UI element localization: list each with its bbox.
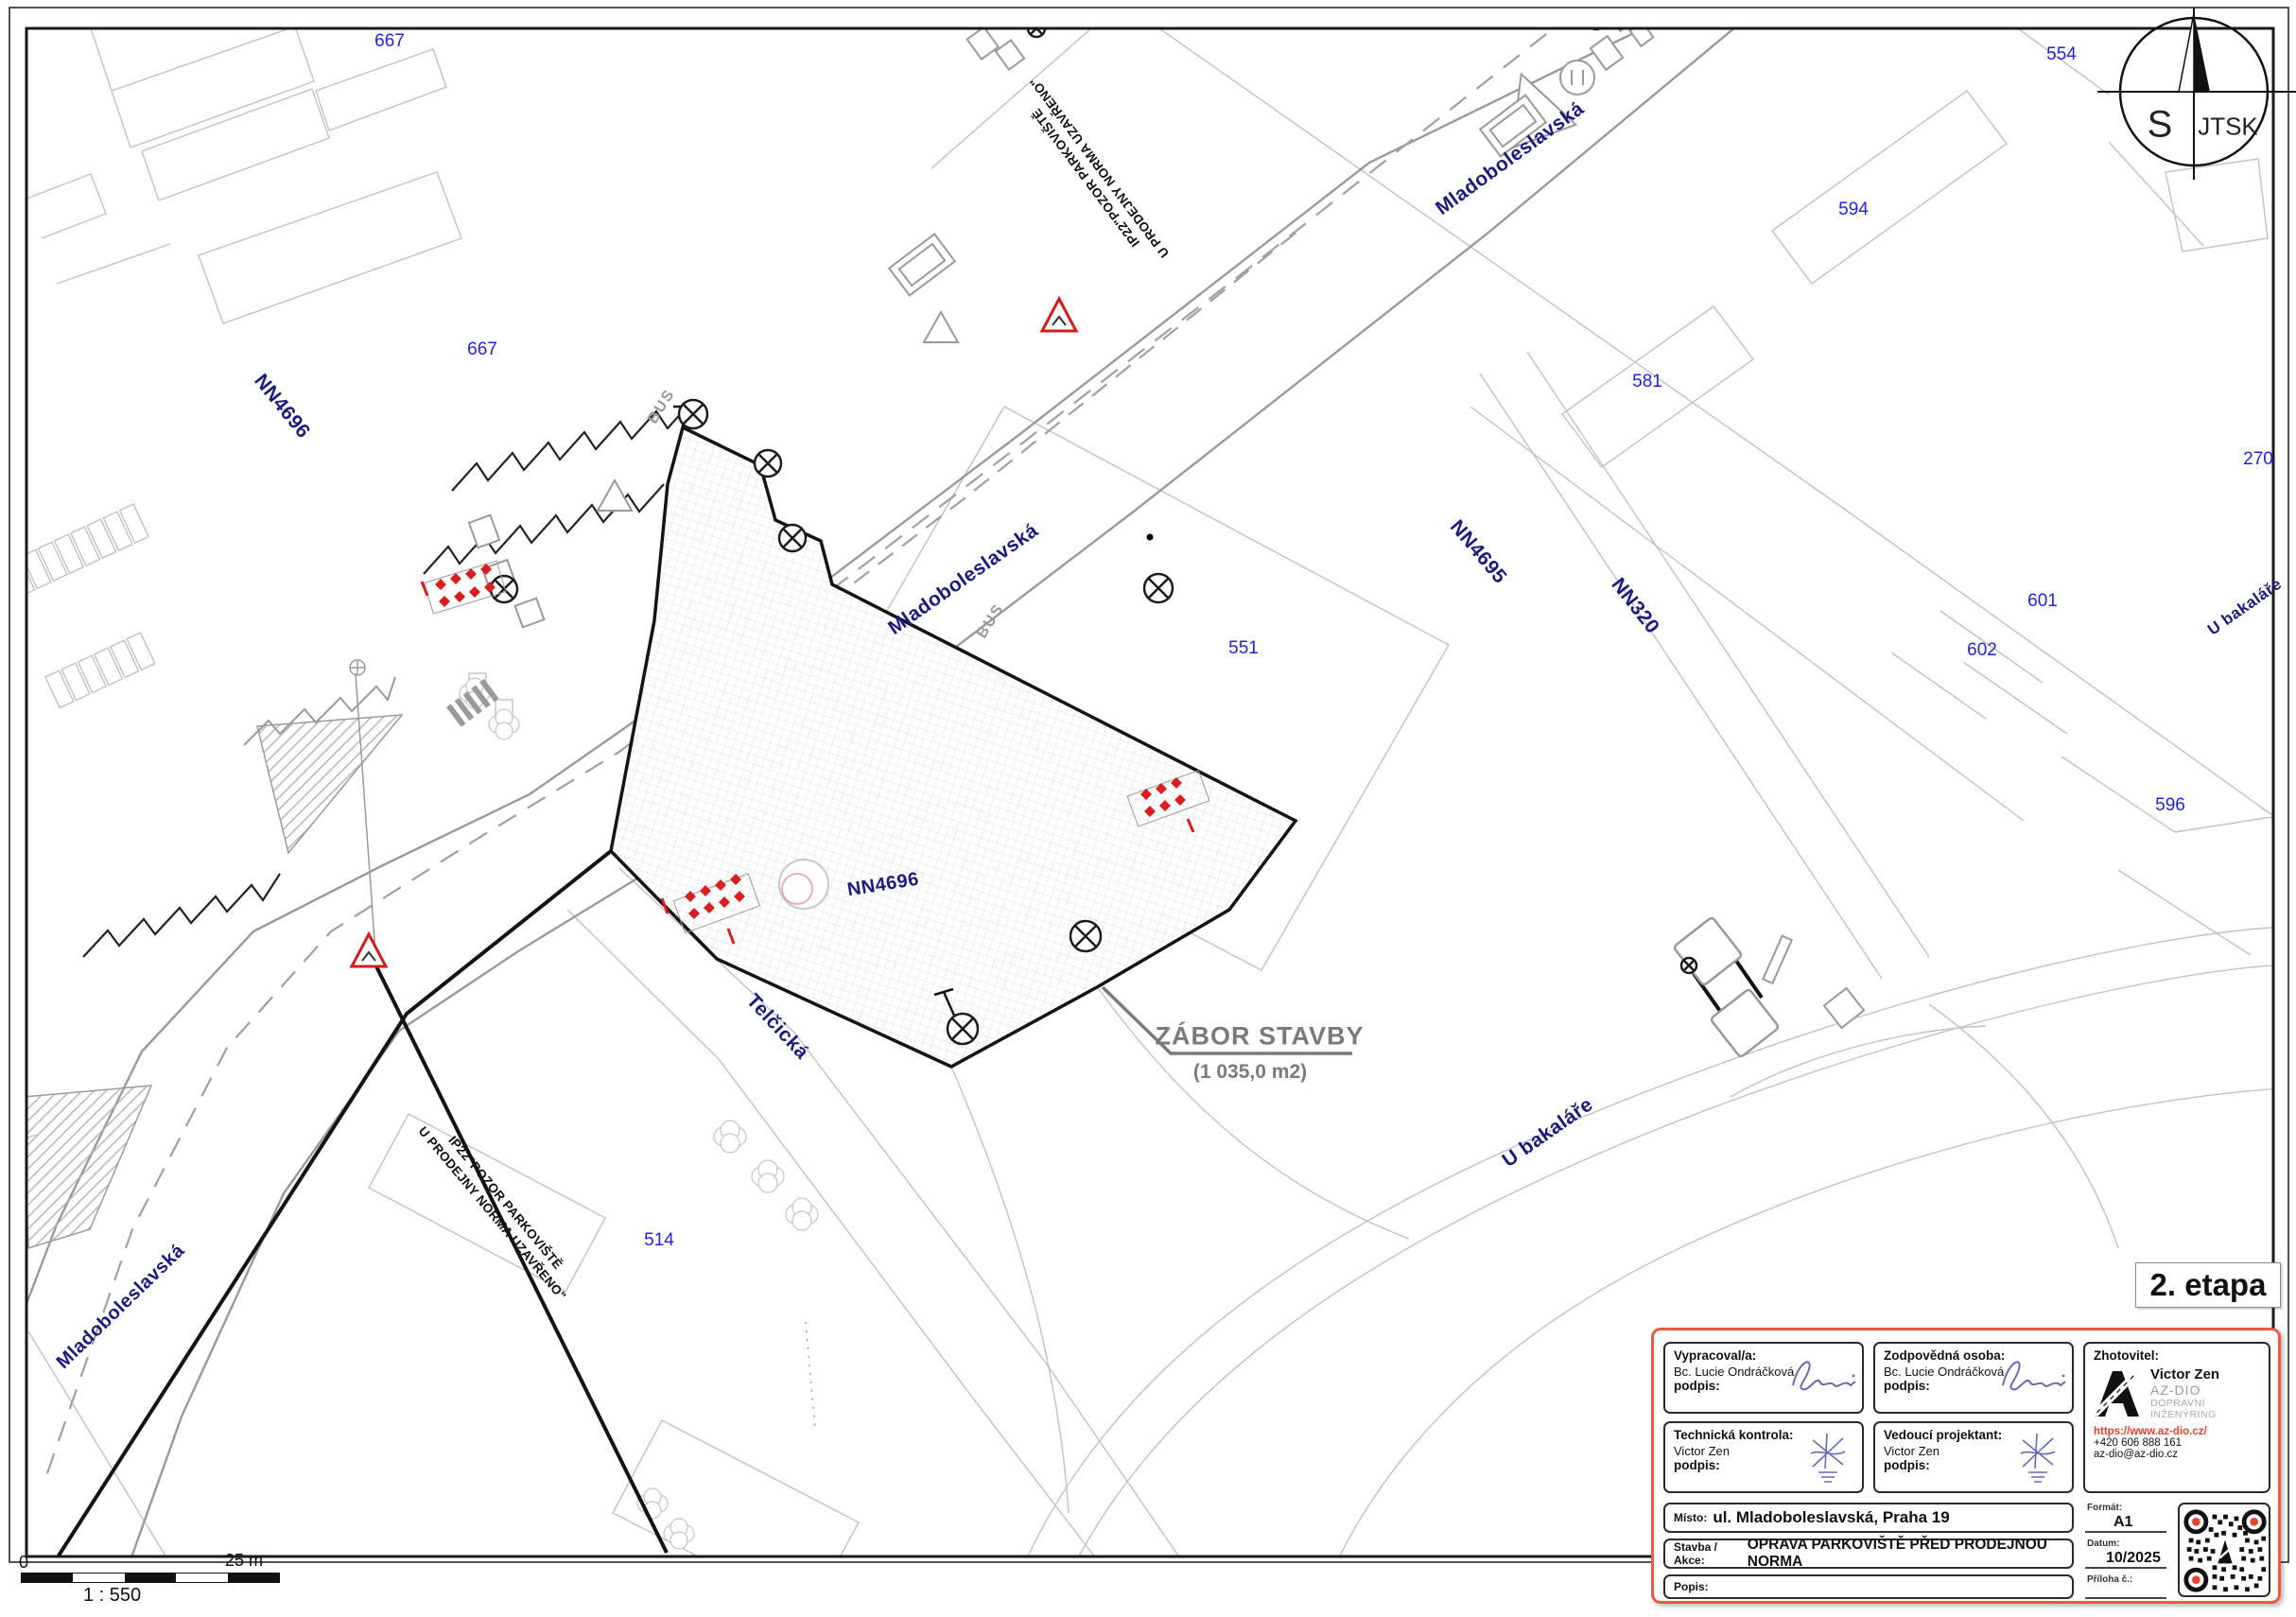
parcel-number: 601 <box>2027 591 2058 612</box>
zabor-area-value: (1 035,0 m2) <box>1193 1061 1307 1084</box>
parcel-number: 602 <box>1967 640 1997 661</box>
temporary-fencing <box>83 401 692 957</box>
contractor-website-link[interactable]: https://www.az-dio.cz/ <box>2094 1426 2260 1437</box>
parcel-number: 667 <box>374 31 405 52</box>
project-box: Stavba / Akce: OPRAVA PARKOVIŠTĚ PŘED PR… <box>1663 1539 2074 1569</box>
zabor-title: ZÁBOR STAVBY <box>1156 1022 1365 1052</box>
scale-zero: 0 <box>19 1553 28 1573</box>
compass-rose <box>2097 8 2296 180</box>
signature-scribble <box>1998 1353 2069 1400</box>
parcel-number: 594 <box>1838 200 1869 220</box>
contractor-label: Zhotovitel: <box>2094 1348 2260 1363</box>
project-label: Stavba / Akce: <box>1674 1540 1742 1567</box>
parking-stalls <box>6 504 155 708</box>
contractor-phone: +420 606 888 161 <box>2094 1437 2260 1449</box>
date-value: 10/2025 <box>2106 1550 2161 1567</box>
hatched-islands <box>24 715 402 1248</box>
date-label: Datum: <box>2087 1539 2119 1549</box>
project-value: OPRAVA PARKOVIŠTĚ PŘED PRODEJNOU NORMA <box>1748 1537 2063 1571</box>
parcel-number: 554 <box>2046 44 2077 65</box>
format-value: A1 <box>2113 1514 2132 1531</box>
lead-designer-box: Vedoucí projektant: Victor Zen podpis: <box>1873 1421 2074 1493</box>
signature-scribble <box>2017 1431 2061 1486</box>
parcel-number: 596 <box>2155 795 2185 816</box>
scale-ratio: 1 : 550 <box>83 1585 141 1607</box>
place-value: ul. Mladoboleslavská, Praha 19 <box>1713 1508 1949 1527</box>
qr-code <box>2178 1503 2270 1597</box>
zabor-stavby-area <box>611 407 1296 1067</box>
signature-scribble <box>1788 1353 1859 1400</box>
site-plan-sheet: NN4696 Mladoboleslavská Mladoboleslavská… <box>0 0 2296 1617</box>
scale-length: 25 m <box>225 1551 263 1571</box>
parcel-number: 270 <box>2243 449 2273 470</box>
description-box: Popis: <box>1663 1574 2074 1599</box>
compass-south-label: S <box>2148 104 2173 147</box>
description-label: Popis: <box>1674 1580 1709 1593</box>
parcel-number: 551 <box>1228 638 1259 659</box>
place-label: Místo: <box>1674 1511 1707 1524</box>
prepared-by-box: Vypracoval/a: Bc. Lucie Ondráčková podpi… <box>1663 1342 1864 1414</box>
stage-label: 2. etapa <box>2150 1267 2267 1303</box>
parcel-number: 581 <box>1632 372 1662 392</box>
format-label: Formát: <box>2087 1503 2122 1513</box>
responsible-person-box: Zodpovědná osoba: Bc. Lucie Ondráčková p… <box>1873 1342 2074 1414</box>
parcel-number: 667 <box>467 339 497 360</box>
compass-grid-label: JTSK <box>2198 113 2258 142</box>
attachment-label: Příloha č.: <box>2087 1574 2132 1585</box>
contractor-company: AZ-DIO <box>2150 1382 2260 1398</box>
az-dio-logo <box>2094 1369 2143 1418</box>
contractor-email: az-dio@az-dio.cz <box>2094 1449 2260 1460</box>
technical-check-box: Technická kontrola: Victor Zen podpis: <box>1663 1421 1864 1493</box>
title-block: Vypracoval/a: Bc. Lucie Ondráčková podpi… <box>1651 1328 2281 1604</box>
contractor-name: Victor Zen <box>2150 1366 2260 1382</box>
scale-bar-graphic <box>21 1573 280 1583</box>
contractor-tagline: DOPRAVNÍ INŽENÝRING <box>2150 1398 2260 1420</box>
parcel-number: 514 <box>644 1230 674 1251</box>
place-box: Místo: ul. Mladoboleslavská, Praha 19 <box>1663 1503 2074 1533</box>
stage-label-box: 2. etapa <box>2135 1262 2281 1308</box>
contractor-box: Zhotovitel: Victor Zen AZ-DIO DOPRAVNÍ I… <box>2083 1342 2270 1493</box>
signature-scribble <box>1807 1431 1851 1486</box>
